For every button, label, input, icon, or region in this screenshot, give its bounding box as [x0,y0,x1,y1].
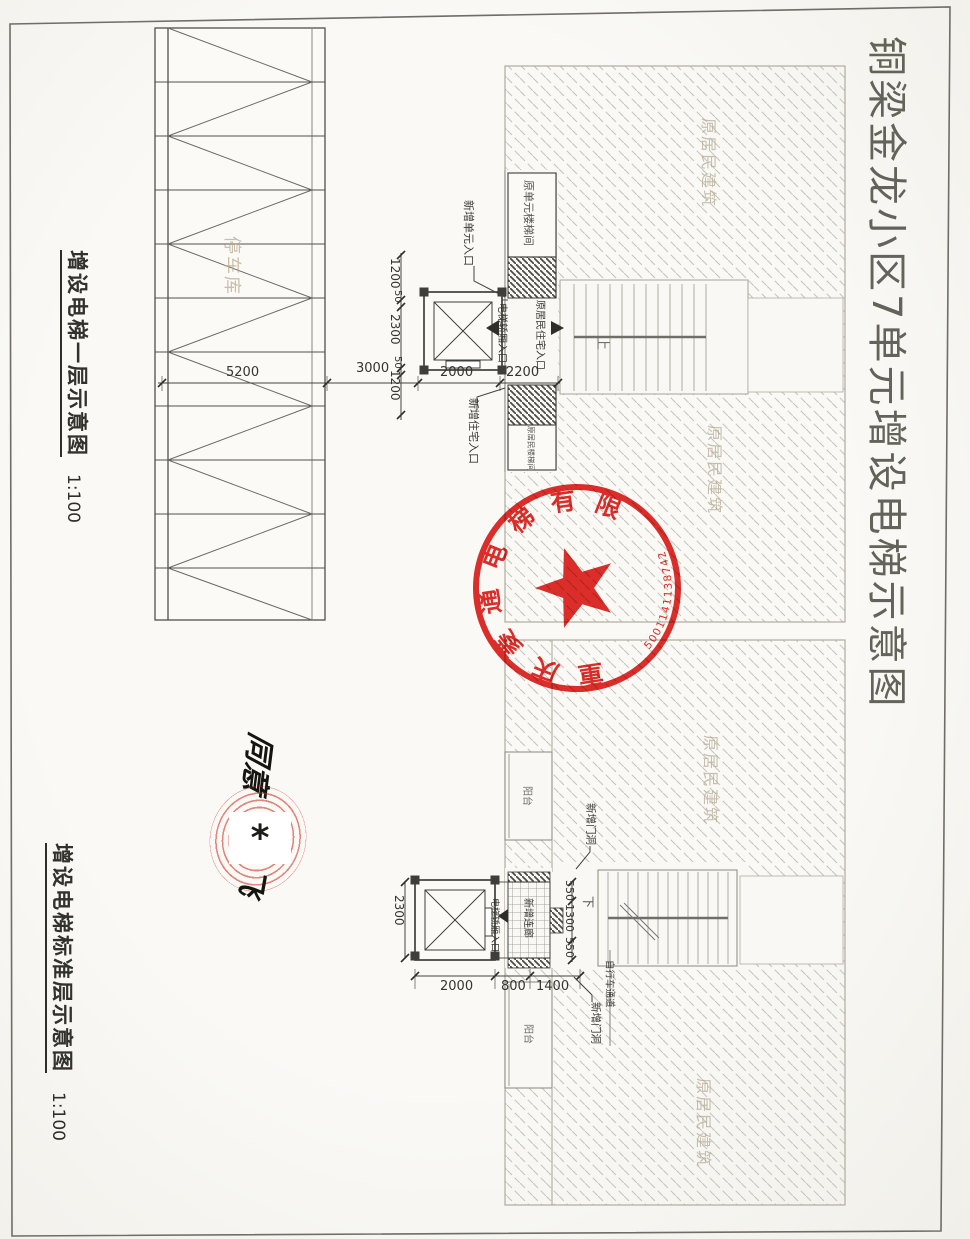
dim-1300: 1300 [564,904,575,932]
balcony-upper-label: 阳台 [521,786,531,806]
stair-box-lower-label: 原居民楼梯间 [527,426,535,471]
dim-2300-f1: 2300 [389,314,401,345]
new-door-upper-label: 新增门洞 [585,803,596,845]
new-unit-entrance-label: 新增单元入口 [463,200,474,266]
dim-2200: 2200 [506,366,539,379]
plan2-caption: 增设电梯标准层示意图 [45,843,72,1073]
dim-2000-std: 2000 [440,980,473,993]
dim-2000: 2000 [440,366,473,379]
dim-50-b: 50 [392,356,402,369]
stair-up-mark: 上 [595,336,609,350]
floor1-building [505,66,845,622]
dim-1200-bottom: 1200 [389,370,401,401]
sheet-title: 铜梁金龙小区7单元增设电梯示意图 [866,36,906,709]
floor-std-entrance-arrow [498,909,508,923]
corridor-label: 新增连廊 [522,898,532,938]
stair-down-mark: 下 [582,896,594,908]
dim-50-a: 50 [392,290,402,303]
old-resident-entrance-label: 原居民住宅入口 [534,300,544,370]
drawing-canvas: 重庆菱通电梯有限公司 5001141138742 [0,0,970,1239]
floor-std-elevator-shaft [411,876,500,961]
parking-structure [155,28,325,620]
dim-1200-top: 1200 [389,258,401,289]
plan1-caption: 增设电梯一层示意图 [60,250,87,457]
redaction-box: * [229,812,291,864]
new-door-lower-label: 新增门洞 [590,1002,601,1044]
dim-1400-std: 1400 [536,980,569,993]
balcony-lower-label: 阳台 [522,1024,532,1044]
building-label: 原居民建筑 [706,425,722,515]
plan2-scale: 1:100 [49,1092,66,1141]
dim-550-bottom: 550 [564,937,575,958]
dim-5200: 5200 [226,366,259,379]
stair-box-upper-label: 原单元楼梯间 [523,180,534,246]
parking-label: 停车库 [222,236,240,296]
new-house-entrance-label: 新增住宅入口 [468,398,479,464]
floor-std-stairs [598,870,737,966]
building-label: 原居民建筑 [695,1078,711,1168]
building-label: 原居民建筑 [700,118,716,208]
elevator-car-entrance-label: 电梯轿厢入口 [489,898,498,952]
plan1-scale: 1:100 [64,474,81,523]
dim-2300-std: 2300 [393,895,405,926]
building-label: 原居民建筑 [702,735,718,825]
bike-passage-label: 自行车通道 [604,960,614,1008]
dim-3000: 3000 [356,362,389,375]
dim-550-top: 550 [564,880,575,901]
elevator-car-entrance-label: 电梯轿厢入口 [496,303,506,363]
dim-800-std: 800 [501,980,526,993]
